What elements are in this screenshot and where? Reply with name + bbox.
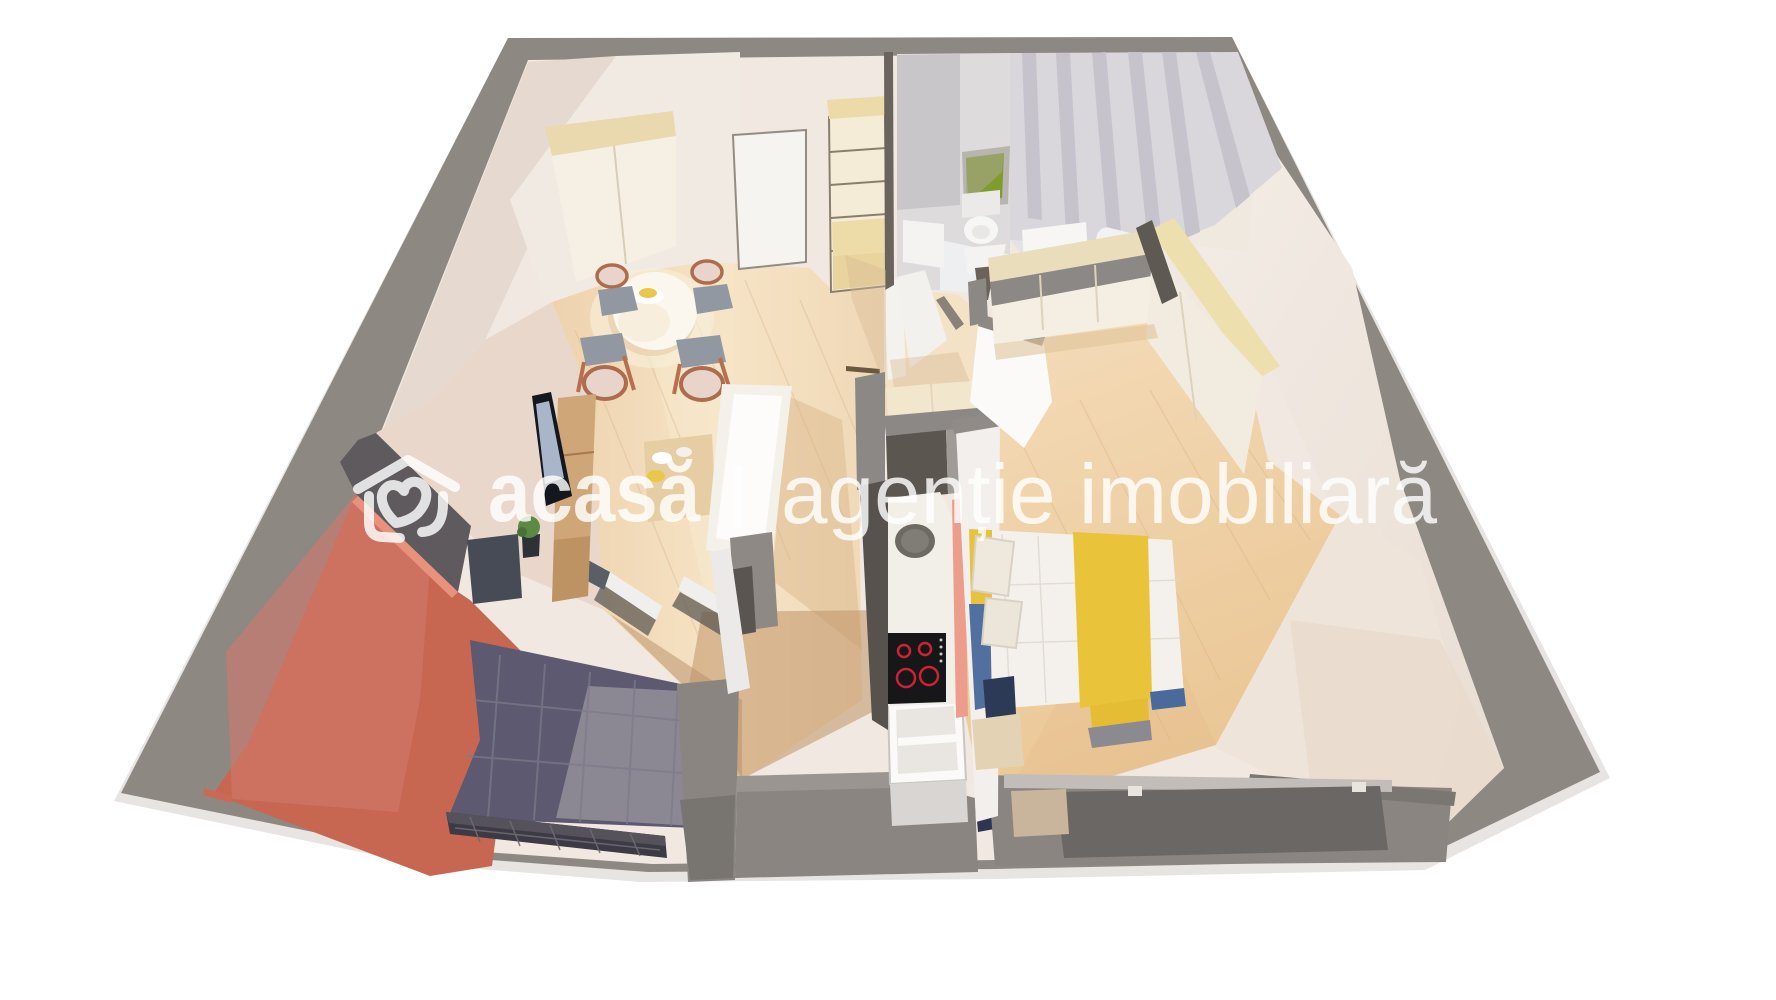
- svg-text:agenție imobiliară: agenție imobiliară: [781, 447, 1437, 541]
- svg-text:acasă: acasă: [488, 445, 701, 539]
